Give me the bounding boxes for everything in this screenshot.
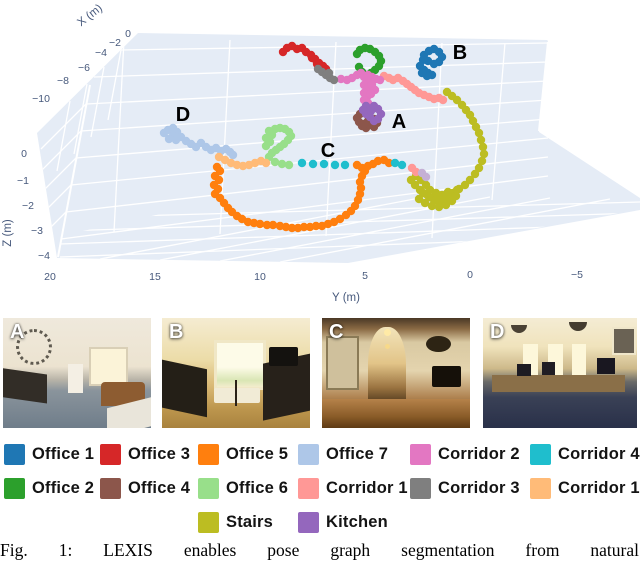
monitor <box>597 358 615 375</box>
y-tick-label: 20 <box>44 271 56 283</box>
legend-item: Kitchen <box>298 512 410 533</box>
monitor <box>269 347 299 367</box>
legend-item: Corridor 1 <box>298 478 410 499</box>
point-corridor-4 <box>309 160 317 168</box>
legend-item-label: Corridor 1 <box>558 479 640 498</box>
y-axis-title: Y (m) <box>332 292 360 304</box>
monitor <box>517 364 531 376</box>
legend-swatch-icon <box>198 444 219 465</box>
point-corridor-1 <box>262 159 270 167</box>
legend-item-label: Office 3 <box>128 445 190 464</box>
legend-item-label: Corridor 4 <box>558 445 640 464</box>
x-tick-label: −10 <box>32 93 50 105</box>
legend-item: Office 2 <box>4 478 100 499</box>
legend: Office 1Office 3Office 5Office 7Corridor… <box>4 444 639 533</box>
chandelier <box>511 325 527 333</box>
legend-swatch-icon <box>298 512 319 533</box>
monitor <box>542 362 556 375</box>
window <box>572 344 586 377</box>
hallway <box>368 327 406 408</box>
wall-picture <box>612 327 636 355</box>
window <box>89 347 129 386</box>
legend-item: Office 1 <box>4 444 100 465</box>
point-office-3 <box>308 54 316 62</box>
legend-item: Office 3 <box>100 444 198 465</box>
desks <box>492 375 624 392</box>
photo-label-a: A <box>10 321 24 344</box>
legend-spacer <box>410 512 530 533</box>
x-tick-label: −6 <box>78 62 90 74</box>
legend-item: Corridor 1 <box>530 478 639 499</box>
photo-office-d: D <box>483 318 637 428</box>
legend-item: Corridor 2 <box>410 444 530 465</box>
z-tick-label: 0 <box>21 148 27 160</box>
point-office-1 <box>418 69 426 77</box>
point-unlabeled <box>422 173 430 181</box>
legend-item: Office 5 <box>198 444 298 465</box>
point-corridor-3 <box>325 69 333 77</box>
point-kitchen <box>367 107 375 115</box>
legend-spacer <box>530 512 639 533</box>
cluster-label-c: C <box>321 140 335 162</box>
point-office-4 <box>360 120 368 128</box>
y-tick-label: 5 <box>362 270 368 282</box>
point-corridor-1 <box>439 96 447 104</box>
point-corridor-4 <box>398 161 406 169</box>
z-tick-label: −2 <box>22 200 34 212</box>
legend-item-label: Office 7 <box>326 445 388 464</box>
cluster-label-a: A <box>392 111 406 133</box>
legend-swatch-icon <box>298 444 319 465</box>
point-corridor-4 <box>298 159 306 167</box>
photo-office-b: B <box>162 318 310 428</box>
legend-item: Office 4 <box>100 478 198 499</box>
legend-item-label: Office 1 <box>32 445 94 464</box>
chandelier <box>569 322 587 331</box>
legend-item: Office 7 <box>298 444 410 465</box>
legend-swatch-icon <box>100 478 121 499</box>
point-corridor-2 <box>376 76 384 84</box>
photo-label-c: C <box>329 321 343 344</box>
desk <box>162 359 206 418</box>
point-corridor-4 <box>341 161 349 169</box>
wall-sign <box>426 336 451 353</box>
legend-swatch-icon <box>198 478 219 499</box>
legend-swatch-icon <box>530 478 551 499</box>
tv-screen <box>432 366 462 387</box>
point-office-7 <box>229 151 237 159</box>
legend-item-label: Office 2 <box>32 479 94 498</box>
photo-office-a: A <box>3 318 151 428</box>
point-corridor-2 <box>367 90 375 98</box>
photo-label-d: D <box>490 321 504 344</box>
y-tick-label: −5 <box>571 269 583 281</box>
y-tick-label: 15 <box>149 271 161 283</box>
wood-floor <box>322 399 470 428</box>
x-tick-label: −8 <box>57 75 69 87</box>
legend-swatch-icon <box>198 512 219 533</box>
legend-item-label: Kitchen <box>326 513 388 532</box>
legend-spacer <box>100 512 198 533</box>
legend-item-label: Corridor 2 <box>438 445 520 464</box>
legend-item: Stairs <box>198 512 298 533</box>
cluster-label-b: B <box>453 42 467 64</box>
desk <box>3 367 47 403</box>
legend-item: Office 6 <box>198 478 298 499</box>
legend-swatch-icon <box>410 444 431 465</box>
radiator <box>214 388 260 402</box>
window <box>214 340 266 390</box>
pose-graph-3d-plot: 0−2−4−6−8−1020151050−50−1−2−3−4X (m)Y (m… <box>0 0 640 312</box>
cabinet <box>68 364 83 393</box>
figure-caption: Fig. 1: LEXIS enables pose graph segment… <box>0 540 639 561</box>
legend-item-label: Office 4 <box>128 479 190 498</box>
photo-corridor-c: C <box>322 318 470 428</box>
z-tick-label: −1 <box>17 175 29 187</box>
z-tick-label: −4 <box>38 250 50 262</box>
legend-item: Corridor 3 <box>410 478 530 499</box>
z-axis-title: Z (m) <box>2 219 14 247</box>
legend-item-label: Corridor 3 <box>438 479 520 498</box>
legend-item-label: Stairs <box>226 513 273 532</box>
legend-swatch-icon <box>410 478 431 499</box>
legend-spacer <box>4 512 100 533</box>
x-tick-label: −4 <box>95 47 107 59</box>
stand <box>235 380 237 406</box>
y-tick-label: 10 <box>254 271 266 283</box>
point-office-6 <box>285 161 293 169</box>
x-tick-label: −2 <box>109 37 121 49</box>
legend-swatch-icon <box>530 444 551 465</box>
point-corridor-4 <box>331 161 339 169</box>
point-corridor-3 <box>330 76 338 84</box>
y-tick-label: 0 <box>467 269 473 281</box>
legend-item: Corridor 4 <box>530 444 639 465</box>
x-axis-title: X (m) <box>75 2 105 29</box>
legend-item-label: Office 5 <box>226 445 288 464</box>
legend-swatch-icon <box>4 478 25 499</box>
legend-swatch-icon <box>298 478 319 499</box>
x-tick-label: 0 <box>125 28 131 40</box>
legend-swatch-icon <box>4 444 25 465</box>
legend-item-label: Corridor 1 <box>326 479 408 498</box>
photo-label-b: B <box>169 321 183 344</box>
legend-item-label: Office 6 <box>226 479 288 498</box>
point-stairs <box>453 186 461 194</box>
scatter3d-canvas: 0−2−4−6−8−1020151050−50−1−2−3−4X (m)Y (m… <box>0 0 640 312</box>
legend-swatch-icon <box>100 444 121 465</box>
z-tick-label: −3 <box>31 225 43 237</box>
cluster-label-d: D <box>176 104 190 126</box>
